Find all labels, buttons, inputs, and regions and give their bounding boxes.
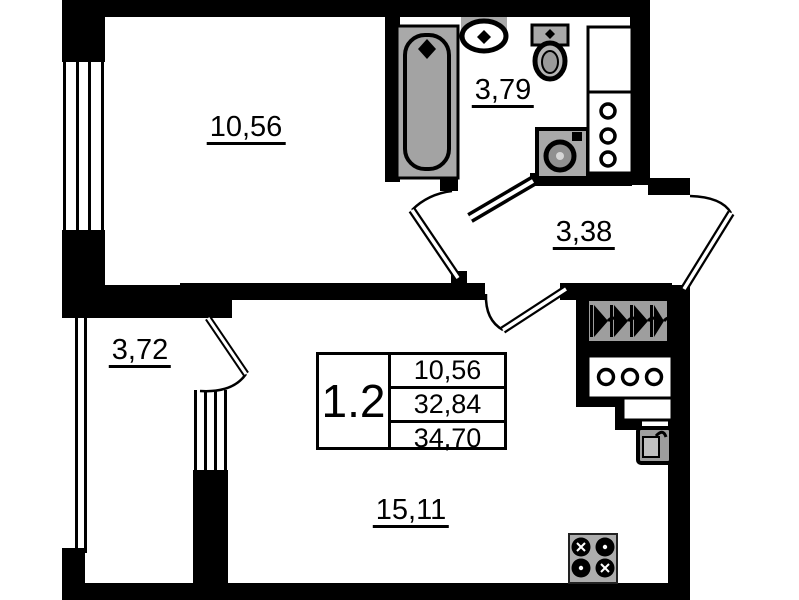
- entrance-door-icon: [684, 196, 731, 289]
- shaft-circles-icon: [588, 92, 632, 173]
- living-room-door-icon: [486, 289, 566, 330]
- bedroom-door-icon: [412, 191, 458, 278]
- living-kitchen-area-label: 15,11: [373, 495, 449, 528]
- stove-icon: [569, 534, 617, 583]
- living-area-value: 10,56: [391, 355, 504, 389]
- balcony-area-label: 3,72: [109, 335, 171, 368]
- bathroom-area-label: 3,79: [472, 75, 534, 108]
- floor-plan: 10,56 3,79 3,38 3,72 15,11 1.2 10,56 32,…: [0, 0, 799, 600]
- bedroom-area-label: 10,56: [207, 112, 286, 145]
- cabinet-box: [588, 27, 632, 92]
- water-heater-icon: [638, 428, 671, 463]
- balcony-window-icon: [194, 390, 227, 470]
- toilet-icon: [532, 25, 568, 79]
- balcony-glazing-icon: [75, 313, 87, 553]
- info-table-values: 10,56 32,84 34,70: [391, 355, 504, 447]
- balcony-door-icon: [200, 318, 246, 391]
- diagonal-wall: [470, 181, 533, 218]
- niche-box: [623, 398, 672, 420]
- bathtub-icon: [397, 26, 458, 178]
- info-table: 1.2 10,56 32,84 34,70: [316, 352, 507, 450]
- wardrobe-hangers-icon: [588, 300, 672, 342]
- sink-icon: [461, 17, 507, 51]
- apartment-area-value: 32,84: [391, 389, 504, 423]
- total-area-value: 34,70: [391, 423, 504, 454]
- shaft-circles-icon: [588, 356, 672, 398]
- washing-machine-icon: [537, 129, 588, 178]
- window-icon: [63, 62, 104, 230]
- unit-number: 1.2: [319, 355, 391, 447]
- hallway-area-label: 3,38: [553, 217, 615, 250]
